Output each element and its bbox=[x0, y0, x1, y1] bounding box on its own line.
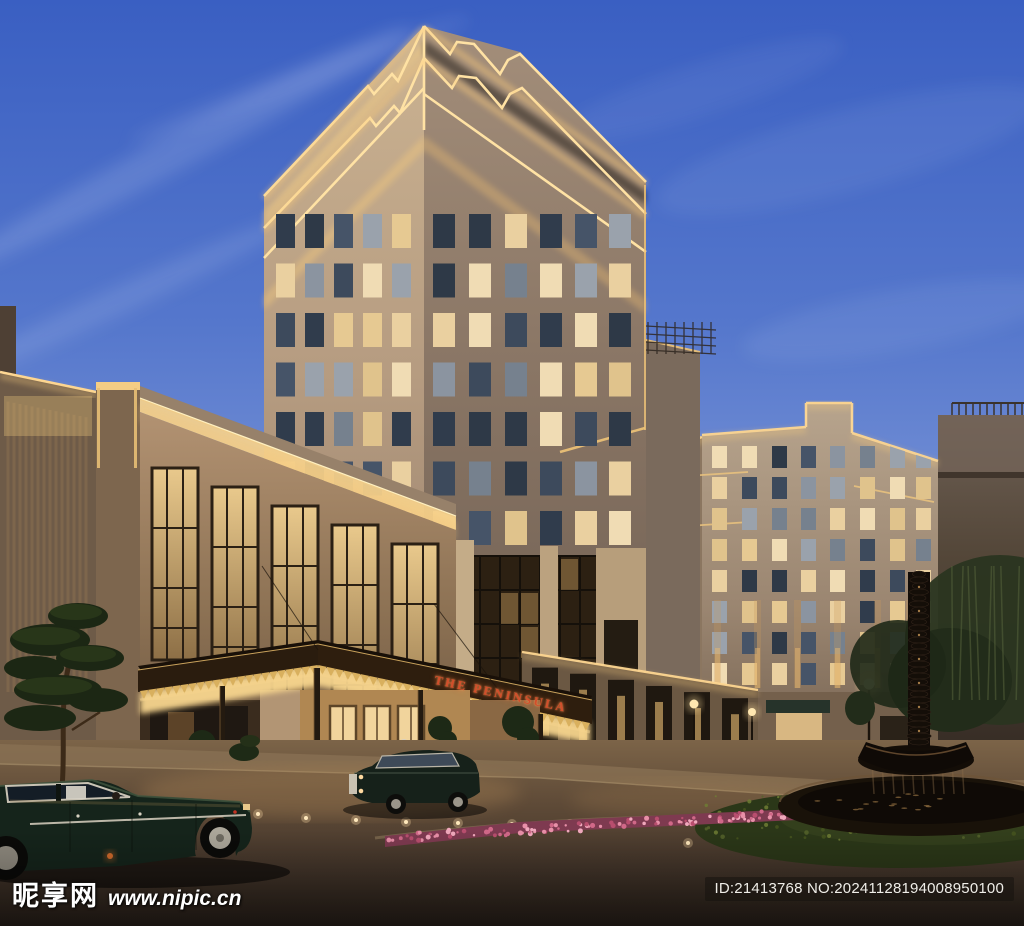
hotel-dusk-photo: THE PENINSULA 昵享网 www.nipic.cn ID:214137… bbox=[0, 0, 1024, 926]
bottom-vignette bbox=[0, 830, 1024, 926]
photo-canvas bbox=[0, 0, 1024, 926]
